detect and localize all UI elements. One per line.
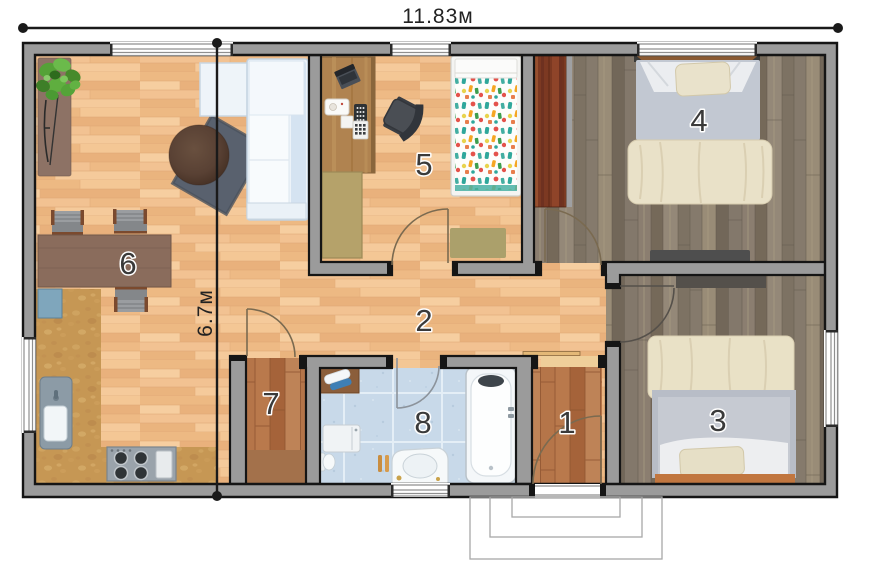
svg-text:2: 2 (415, 303, 432, 338)
svg-text:1: 1 (558, 405, 575, 440)
svg-text:7: 7 (262, 386, 279, 421)
svg-text:6.7м: 6.7м (194, 289, 217, 337)
svg-text:3: 3 (709, 403, 726, 438)
svg-text:4: 4 (690, 103, 707, 138)
svg-text:5: 5 (415, 147, 432, 182)
svg-text:8: 8 (414, 405, 431, 440)
svg-text:11.83м: 11.83м (402, 5, 473, 28)
svg-text:6: 6 (119, 246, 136, 281)
